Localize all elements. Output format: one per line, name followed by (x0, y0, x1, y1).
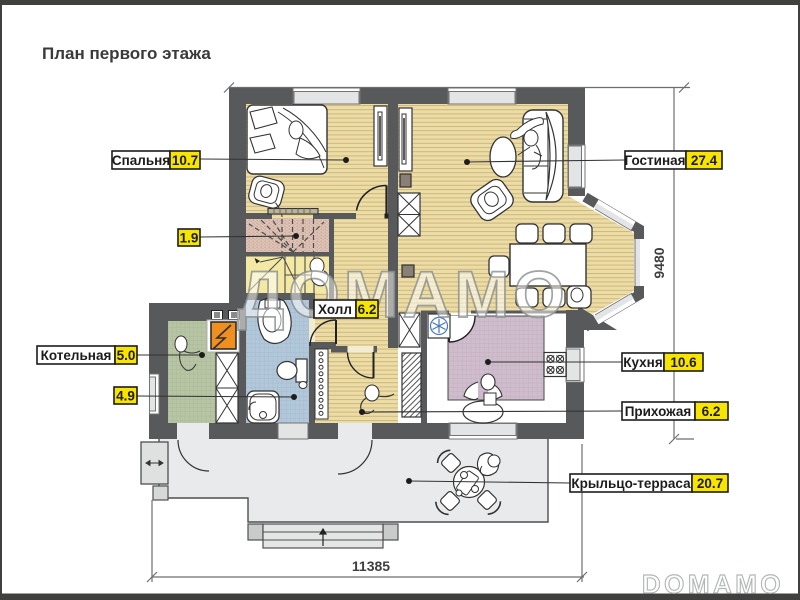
svg-text:ДОМАМО: ДОМАМО (237, 257, 568, 331)
svg-text:6.2: 6.2 (358, 302, 377, 317)
svg-text:Кухня: Кухня (623, 355, 662, 370)
svg-text:11385: 11385 (352, 558, 390, 574)
svg-text:9480: 9480 (651, 247, 667, 278)
svg-text:4.9: 4.9 (116, 389, 135, 404)
svg-text:27.4: 27.4 (691, 153, 718, 168)
svg-text:1.9: 1.9 (180, 231, 199, 246)
svg-text:Крыльцо-терраса: Крыльцо-терраса (571, 476, 691, 491)
svg-text:6.2: 6.2 (702, 404, 721, 419)
svg-text:Спальня: Спальня (112, 153, 170, 168)
svg-text:10.7: 10.7 (172, 153, 198, 168)
svg-text:5.0: 5.0 (117, 348, 136, 363)
svg-text:Холл: Холл (318, 302, 352, 317)
svg-text:Прихожая: Прихожая (625, 404, 692, 419)
svg-text:20.7: 20.7 (697, 476, 723, 491)
svg-text:Гостиная: Гостиная (624, 153, 685, 168)
svg-text:DOMAMO: DOMAMO (642, 569, 784, 599)
svg-text:Котельная: Котельная (41, 348, 112, 363)
svg-text:План первого этажа: План первого этажа (42, 44, 211, 63)
svg-text:10.6: 10.6 (670, 355, 697, 370)
